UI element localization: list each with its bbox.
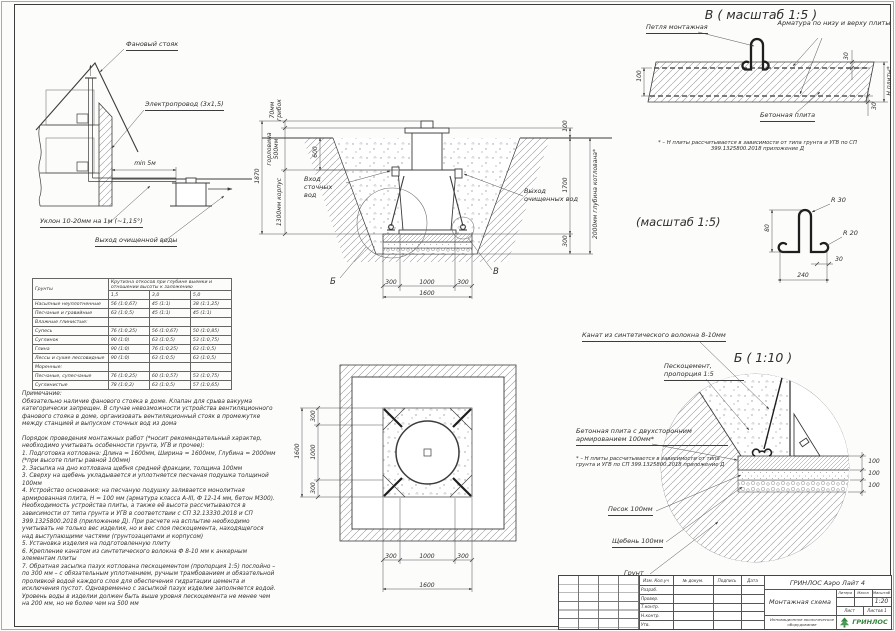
brand-text: ГРИНЛОС (852, 618, 887, 626)
detail-v-dim-100: 100 (636, 63, 643, 89)
rope-label: Канат из синтетического волокна 8-10мм (582, 332, 726, 342)
house-section-drawing (36, 49, 252, 243)
table-row: Суглинок90 (1:0)63 (1:0,5)53 (1:0,75) (33, 336, 232, 345)
gravel-layer-label: Щебень 100мм (612, 538, 663, 548)
plan-dim-300-top: 300 (310, 408, 317, 424)
table-row: Песчаные, супесчаные76 (1:0,25)60 (1:0,5… (33, 372, 232, 381)
note-title: Примечание: (22, 391, 276, 399)
table-row: Влажные глинистые: (33, 318, 232, 327)
pit-plan-drawing (300, 365, 516, 592)
notes-block: Примечание: Обязательно наличие фанового… (22, 391, 276, 609)
armored-slab-label: Бетонная плита с двухсторонним армирован… (576, 428, 728, 446)
electric-wire-label: Электропровод (3х1,5) (145, 101, 224, 111)
tb-header-sign: Подпись (713, 576, 741, 585)
note-body: Обязательно наличие фанового стояка в до… (22, 399, 276, 429)
massa-label: Масса (854, 589, 872, 597)
loop-detail-title: (масштаб 1:5) (636, 216, 721, 230)
grinlos-logo-icon (839, 617, 850, 628)
rebar-label: Арматура по низу и верху плиты (776, 20, 892, 28)
table-row: Песчаные и гравийные63 (1:0,5)45 (1:1)45… (33, 309, 232, 318)
sheet-label: Лист (836, 606, 863, 615)
plan-dim-1600-h: 1600 (415, 582, 439, 589)
dim-300-label: 300 (562, 230, 569, 252)
install-order-title: Порядок проведения монтажных работ (*нос… (22, 436, 276, 451)
document-title: ГРИНЛОС Аэро Лайт 4 (764, 576, 891, 589)
inlet-label: Вход сточных вод (304, 176, 346, 199)
section-dim-300-left: 300 (380, 279, 402, 286)
pit-depth-dim-label: 2000мм глубина котлована* (592, 135, 599, 253)
concrete-slab-label: Бетонная плита (760, 112, 815, 122)
tb-row-tkontr: Т.контр. (639, 603, 675, 612)
tb-header-docnum: № докум. (673, 576, 713, 585)
table-row: Суглинистые78 (1:0,2)63 (1:0,5)57 (1:0,6… (33, 381, 232, 390)
install-step: 7. Обратная засыпка пазух котлована песк… (22, 564, 276, 609)
layer-dim-100-1: 100 (866, 458, 882, 465)
loop-dim-30: 30 (831, 256, 847, 263)
section-dim-300-right: 300 (452, 279, 474, 286)
scale-value: 1:20 (872, 597, 891, 606)
dim-600-label: 600 (312, 138, 319, 166)
mounting-loop-label: Петля монтажная (646, 24, 708, 34)
install-step: 4. Устройство основания: на песчаную под… (22, 488, 276, 541)
tb-row-prover: Провер. (639, 594, 675, 603)
marker-v: В (493, 267, 499, 277)
marker-b: Б (330, 277, 336, 287)
tb-row-razrab: Разраб. (639, 585, 675, 594)
company-logo: ГРИНЛОС (836, 615, 891, 629)
body-dim-label: 1300мм корпус (276, 171, 283, 233)
tb-header-date: Дата (741, 576, 764, 585)
soil-table-header: Грунты (33, 279, 109, 300)
layer-dim-100-3: 100 (866, 482, 882, 489)
slope-label: Уклон 10-20мм на 1м (~1,15°) (40, 218, 143, 228)
plan-dim-300-right: 300 (452, 553, 474, 560)
distance-dim-label: min 5м (120, 160, 170, 167)
cap-dim-label: 70мм грибок (269, 93, 283, 127)
radius-30-label: R 30 (831, 197, 846, 205)
install-step: 3. Сверху на щебень укладывается и уплот… (22, 473, 276, 488)
table-row: Насыпные неуплотненные56 (1:0,67)45 (1:1… (33, 300, 232, 309)
detail-v-dim-30-bottom: 30 (871, 100, 878, 112)
vent-stack-label: Фановый стояк (126, 41, 178, 51)
tb-row-nkontr: Н.контр. (639, 611, 675, 620)
depth-col-3: 5,0 (190, 291, 231, 300)
install-step: 6. Крепление канатом из синтетического в… (22, 549, 276, 564)
table-row: Супесь76 (1:0,25)56 (1:0,67)50 (1:0,85) (33, 327, 232, 336)
detail-v-note: * – Н плиты рассчитывается в зависимости… (650, 140, 865, 153)
install-step: 5. Установка изделия на подготовленную п… (22, 541, 276, 549)
table-row: Лессы и сухие лессовидные90 (1:0)63 (1:0… (33, 354, 232, 363)
sheets-count: Листов 1 (863, 606, 891, 615)
clean-water-outlet-label: Выход очищенной воды (95, 237, 177, 247)
drawing-sheet: Фановый стояк Электропровод (3х1,5) min … (0, 0, 895, 631)
tb-header-izm: Изм. Кол.уч (639, 576, 673, 585)
tb-row-utv: Утв. (639, 620, 675, 629)
loop-dim-80: 80 (764, 216, 771, 240)
plan-dim-1600-v: 1600 (294, 438, 301, 464)
layer-dim-100-2: 100 (866, 470, 882, 477)
slab-height-dim: Н плиты* (886, 62, 893, 100)
plan-dim-1000: 1000 (417, 553, 437, 560)
outlet-label: Выход очищенных вод (524, 188, 580, 204)
total-height-dim-label: 1870 (254, 156, 261, 196)
section-dim-1600: 1600 (415, 290, 439, 297)
detail-b-note: * – Н плиты рассчитывается в зависимости… (576, 456, 738, 469)
drawing-name: Монтажная схема (764, 589, 836, 615)
neck-dim-label: горловина 500мм (266, 130, 280, 168)
depth-col-2: 3,0 (149, 291, 190, 300)
table-row: Глина90 (1:0)76 (1:0,25)63 (1:0,5) (33, 345, 232, 354)
sandcement-label: Пескоцемент, пропорция 1:5 (664, 363, 744, 381)
scale-label: Масштаб (872, 589, 891, 597)
soil-slope-table: Грунты Крутизна откосов при глубине выем… (32, 278, 232, 390)
section-dim-1000: 1000 (417, 279, 437, 286)
detail-v-drawing (641, 32, 888, 116)
dim-100-label: 100 (562, 116, 569, 136)
install-step: 2. Засыпка на дно котлована щебня средне… (22, 466, 276, 474)
title-block: Изм. Кол.уч № докум. Подпись Дата Разраб… (558, 575, 892, 630)
title-block-left-grid (559, 576, 639, 629)
plan-dim-1000-v: 1000 (310, 440, 317, 464)
loop-dim-240: 240 (791, 272, 815, 279)
depth-col-1: 1,5 (108, 291, 149, 300)
plan-dim-300-left: 300 (380, 553, 402, 560)
plan-dim-300-bottom: 300 (310, 480, 317, 496)
company-slogan: Инновационное экологическое оборудование (764, 615, 840, 629)
litera-label: Литера (836, 589, 854, 597)
install-step: 1. Подготовка котлована: Длина = 1600мм,… (22, 451, 276, 466)
radius-20-label: R 20 (843, 230, 858, 238)
sand-layer-label: Песок 100мм (608, 506, 653, 516)
soil-table-group-header: Крутизна откосов при глубине выемки и от… (108, 279, 231, 291)
detail-v-dim-30-top: 30 (843, 50, 850, 62)
table-row: Моренные: (33, 363, 232, 372)
tank-plan-circle (396, 421, 459, 484)
